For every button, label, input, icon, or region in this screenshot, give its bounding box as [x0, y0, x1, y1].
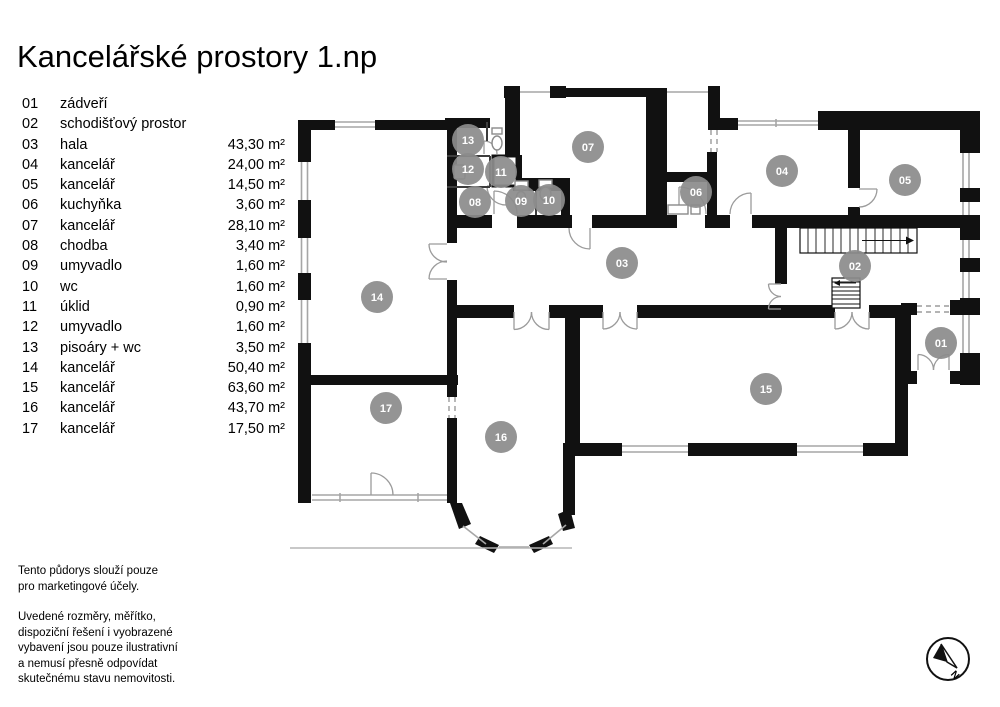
svg-text:02: 02: [849, 261, 861, 273]
room-badge-08: 08: [459, 186, 491, 218]
room-badge-13: 13: [452, 124, 484, 156]
svg-text:11: 11: [495, 167, 507, 179]
room-badge-15: 15: [750, 373, 782, 405]
room-badge-14: 14: [361, 281, 393, 313]
walls: [298, 86, 980, 553]
room-badge-01: 01: [925, 327, 957, 359]
room-badge-02: 02: [839, 250, 871, 282]
floor-plan: 0102030405060708091011121314151617 N: [0, 0, 1000, 707]
svg-text:10: 10: [543, 195, 555, 207]
svg-text:07: 07: [582, 142, 594, 154]
svg-text:03: 03: [616, 258, 628, 270]
svg-text:08: 08: [469, 197, 481, 209]
svg-text:09: 09: [515, 196, 527, 208]
svg-text:05: 05: [899, 175, 911, 187]
room-badge-06: 06: [680, 176, 712, 208]
kitchen-counter-icon: [668, 205, 688, 214]
svg-text:13: 13: [462, 135, 474, 147]
room-badge-07: 07: [572, 131, 604, 163]
room-badge-10: 10: [533, 184, 565, 216]
north-compass-icon: N: [927, 638, 969, 682]
room-badge-09: 09: [505, 185, 537, 217]
svg-text:01: 01: [935, 338, 947, 350]
svg-text:12: 12: [462, 164, 474, 176]
room-badge-03: 03: [606, 247, 638, 279]
svg-text:17: 17: [380, 403, 392, 415]
urinal-icon: [492, 128, 502, 134]
svg-text:04: 04: [776, 166, 789, 178]
svg-text:06: 06: [690, 187, 702, 199]
svg-text:15: 15: [760, 384, 772, 396]
room-badge-04: 04: [766, 155, 798, 187]
room-badge-16: 16: [485, 421, 517, 453]
svg-text:16: 16: [495, 432, 507, 444]
wc-icon: [492, 136, 502, 150]
svg-text:14: 14: [371, 292, 384, 304]
room-badge-05: 05: [889, 164, 921, 196]
room-badge-17: 17: [370, 392, 402, 424]
room-badge-12: 12: [452, 153, 484, 185]
room-badge-11: 11: [485, 156, 517, 188]
